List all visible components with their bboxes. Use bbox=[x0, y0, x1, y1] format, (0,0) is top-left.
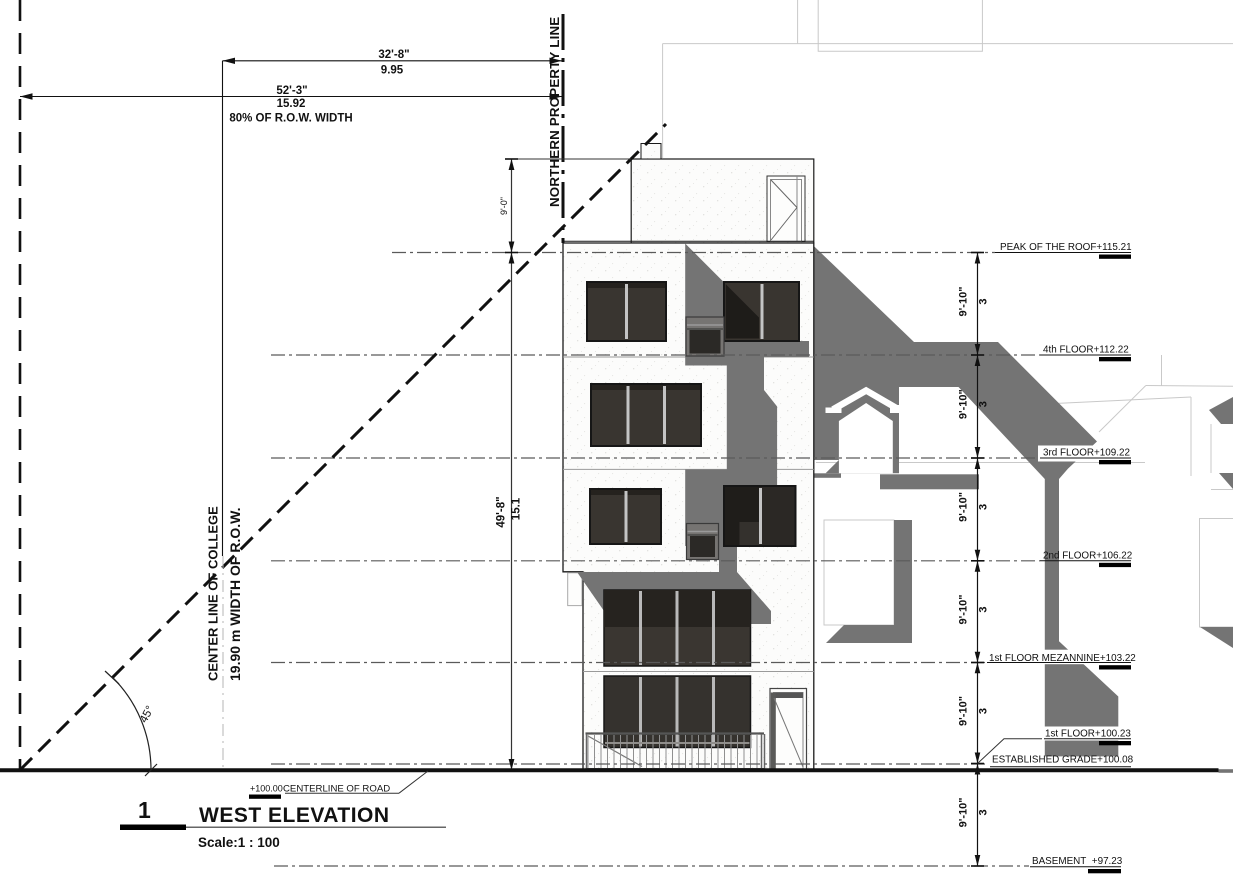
svg-text:49'-8": 49'-8" bbox=[496, 496, 508, 527]
svg-text:WEST ELEVATION: WEST ELEVATION bbox=[199, 804, 390, 827]
svg-text:2nd FLOOR+106.22: 2nd FLOOR+106.22 bbox=[1043, 550, 1132, 561]
svg-text:52'-3": 52'-3" bbox=[276, 85, 307, 97]
svg-text:80% OF R.O.W. WIDTH: 80% OF R.O.W. WIDTH bbox=[229, 113, 352, 125]
svg-text:NORTHERN PROPERTY LINE: NORTHERN PROPERTY LINE bbox=[547, 17, 562, 207]
svg-text:9'-10": 9'-10" bbox=[958, 492, 970, 522]
svg-text:15.1: 15.1 bbox=[511, 497, 523, 520]
svg-text:32'-8": 32'-8" bbox=[378, 49, 409, 61]
svg-text:3rd FLOOR+109.22: 3rd FLOOR+109.22 bbox=[1043, 448, 1130, 459]
svg-text:BASEMENT +97.23: BASEMENT +97.23 bbox=[1032, 856, 1123, 867]
svg-text:ESTABLISHED GRADE+100.08: ESTABLISHED GRADE+100.08 bbox=[992, 755, 1134, 766]
svg-text:19.90 m WIDTH OF R.O.W.: 19.90 m WIDTH OF R.O.W. bbox=[227, 508, 243, 681]
svg-text:9'-10": 9'-10" bbox=[958, 287, 970, 317]
svg-text:4th FLOOR+112.22: 4th FLOOR+112.22 bbox=[1043, 345, 1129, 356]
svg-text:1: 1 bbox=[138, 797, 151, 823]
svg-text:3: 3 bbox=[978, 606, 990, 612]
svg-text:3: 3 bbox=[978, 401, 990, 407]
svg-text:+100.00: +100.00 bbox=[250, 784, 283, 794]
svg-text:3: 3 bbox=[978, 504, 990, 510]
svg-text:3: 3 bbox=[978, 809, 990, 815]
svg-text:15.92: 15.92 bbox=[277, 98, 306, 110]
svg-text:9'-10": 9'-10" bbox=[958, 797, 970, 827]
svg-text:PEAK OF THE ROOF+115.21: PEAK OF THE ROOF+115.21 bbox=[1000, 242, 1132, 253]
svg-text:9'-10": 9'-10" bbox=[958, 595, 970, 625]
svg-text:CENTER LINE OF COLLEGE: CENTER LINE OF COLLEGE bbox=[206, 506, 221, 681]
svg-text:3: 3 bbox=[978, 298, 990, 304]
svg-text:9'-10": 9'-10" bbox=[958, 696, 970, 726]
svg-text:1st FLOOR+100.23: 1st FLOOR+100.23 bbox=[1045, 729, 1131, 740]
svg-text:9.95: 9.95 bbox=[381, 65, 404, 77]
svg-text:Scale:1 : 100: Scale:1 : 100 bbox=[198, 835, 280, 850]
svg-text:3: 3 bbox=[978, 708, 990, 714]
svg-text:9'-0": 9'-0" bbox=[499, 197, 509, 215]
svg-text:9'-10": 9'-10" bbox=[958, 389, 970, 419]
